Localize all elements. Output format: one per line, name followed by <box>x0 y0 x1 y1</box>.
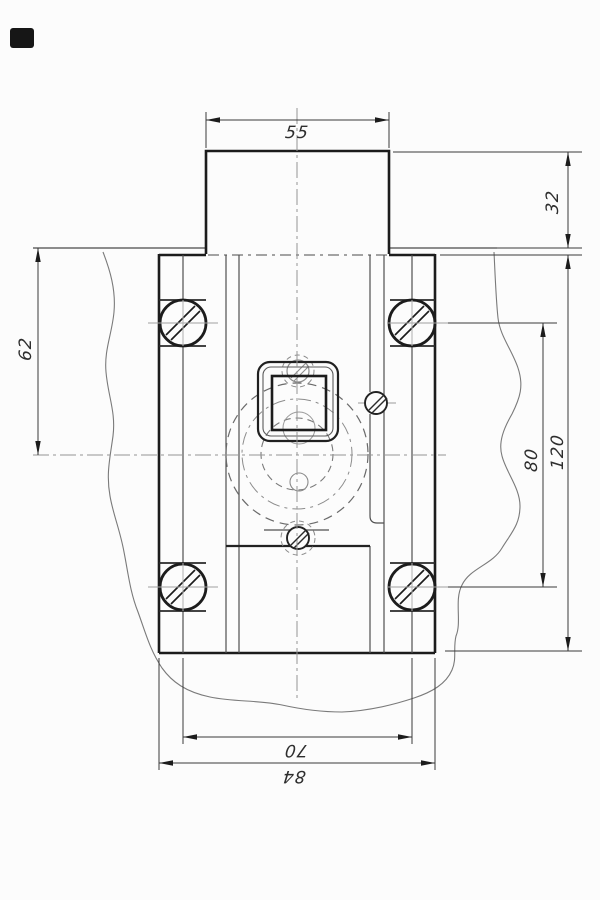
small-screw-top <box>282 355 314 387</box>
small-screw-bottom <box>281 521 315 555</box>
small-screw-right <box>358 392 396 414</box>
dim-label-70: 70 <box>283 740 309 760</box>
dim-label-62: 62 <box>16 336 36 362</box>
dim-label-84: 84 <box>281 766 307 786</box>
dim-62 <box>35 248 40 455</box>
dim-label-80: 80 <box>522 447 542 473</box>
corner-mark <box>10 28 34 48</box>
dim-label-32: 32 <box>543 189 563 215</box>
dim-label-120: 120 <box>548 433 568 471</box>
square-opening <box>258 362 338 441</box>
dim-label-55: 55 <box>284 123 310 143</box>
drawing-sheet: 55 32 62 80 120 70 84 <box>0 0 600 900</box>
